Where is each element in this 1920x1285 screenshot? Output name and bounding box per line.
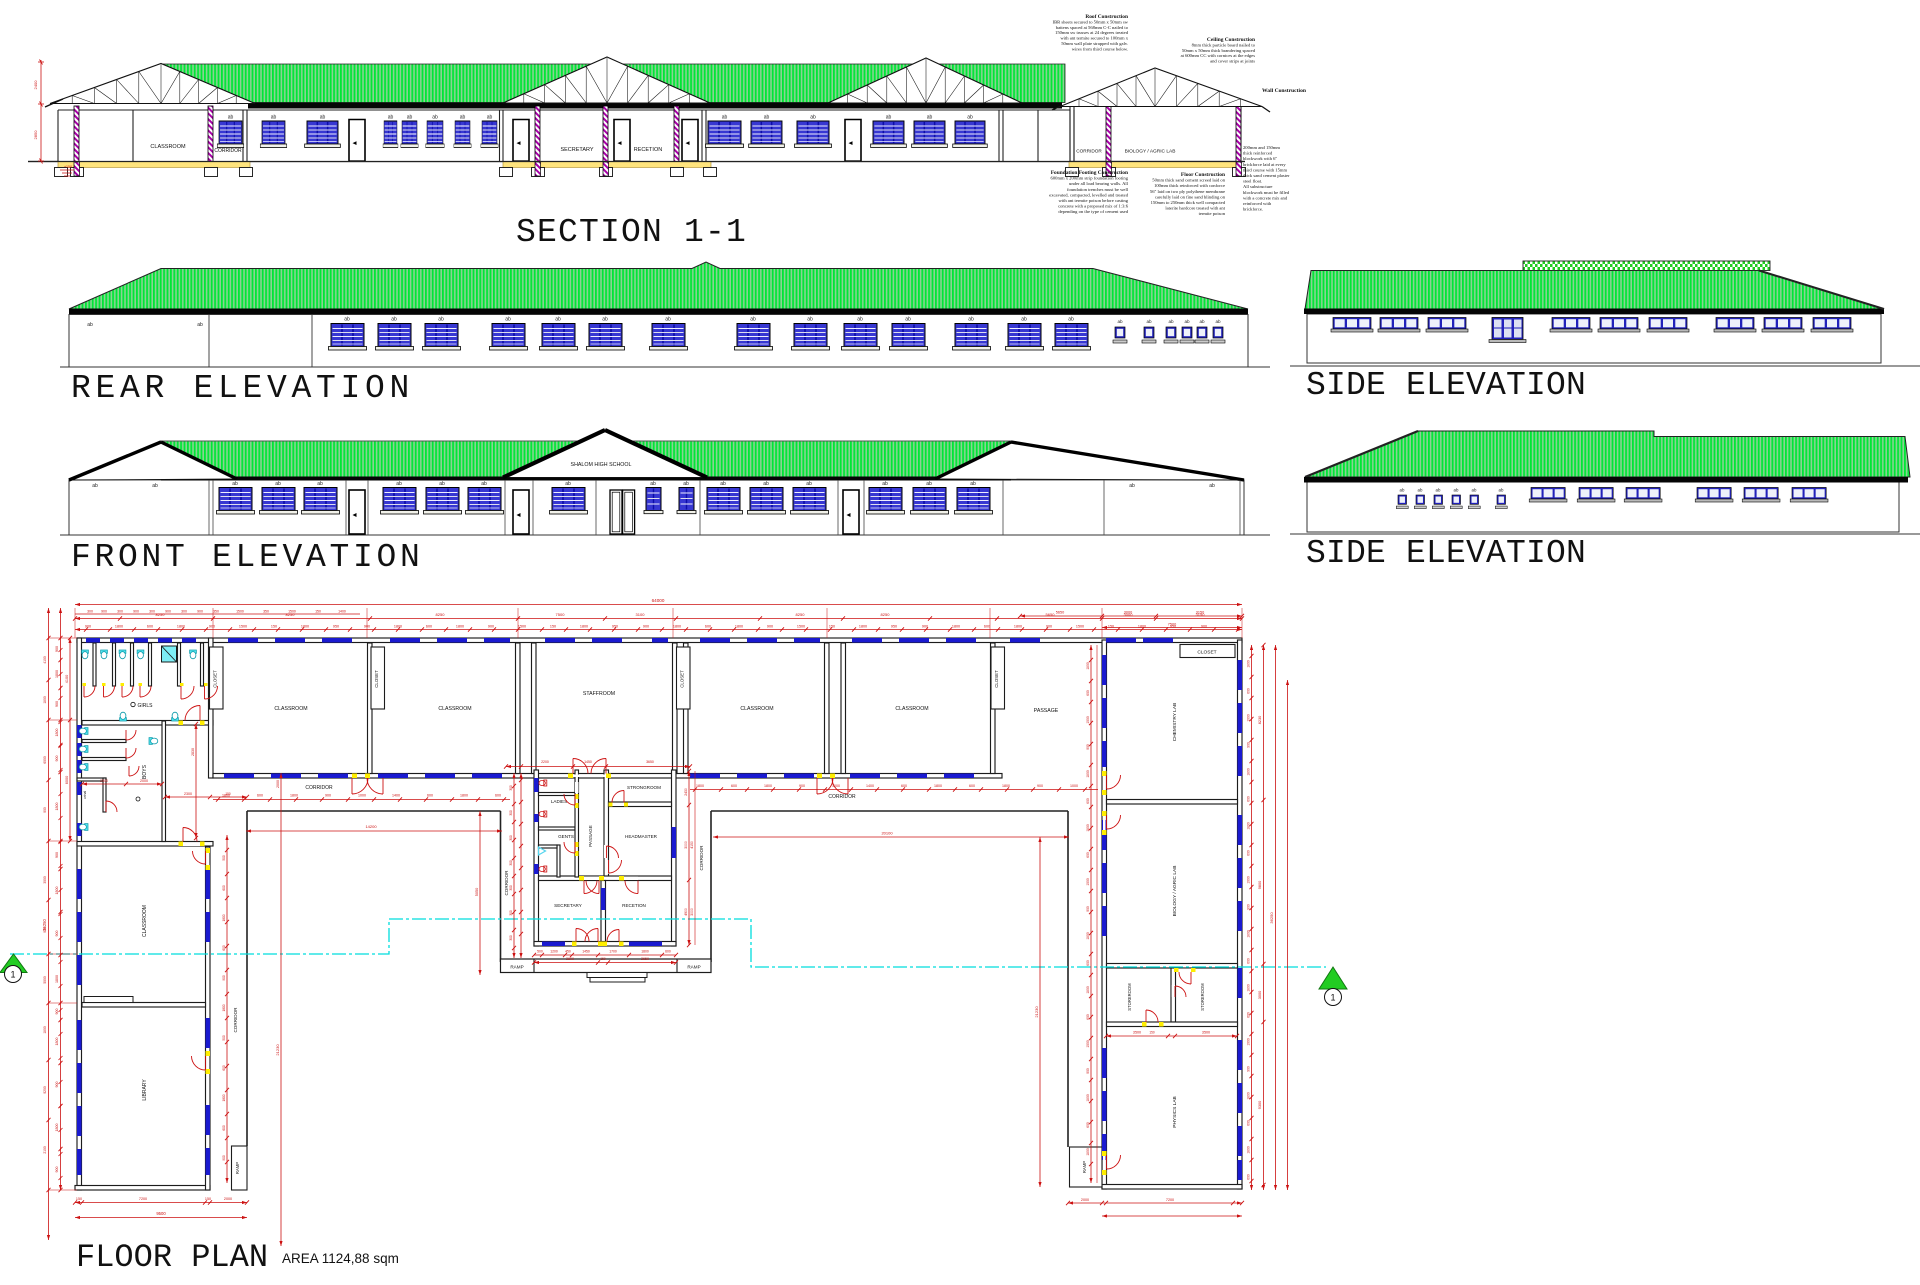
svg-text:2500: 2500 (100, 779, 108, 783)
svg-text:1000: 1000 (832, 784, 840, 788)
svg-text:ab: ab (882, 481, 888, 487)
svg-text:ab: ab (271, 115, 277, 121)
svg-text:5050: 5050 (475, 888, 479, 896)
svg-text:600: 600 (1247, 1120, 1251, 1126)
svg-text:1800: 1800 (580, 625, 588, 629)
svg-text:GENTS: GENTS (558, 834, 574, 839)
svg-text:600: 600 (1247, 1012, 1251, 1018)
svg-text:8250: 8250 (436, 612, 446, 617)
svg-text:300: 300 (509, 860, 513, 866)
svg-text:ab: ab (927, 115, 933, 121)
svg-text:1800: 1800 (1086, 824, 1090, 832)
svg-text:300: 300 (117, 610, 123, 614)
svg-text:laterite hardcore treated with: laterite hardcore treated with ant (1165, 206, 1225, 211)
svg-text:ab: ab (1168, 319, 1174, 324)
svg-text:900: 900 (1247, 742, 1251, 748)
svg-text:1800: 1800 (1086, 1094, 1090, 1102)
svg-text:600: 600 (1247, 1174, 1251, 1180)
svg-text:ab: ab (232, 481, 238, 487)
svg-text:with ant termite poison before: with ant termite poison before casting (1058, 198, 1128, 203)
svg-text:150: 150 (271, 625, 277, 629)
svg-text:ab: ab (1146, 319, 1152, 324)
svg-text:1800: 1800 (1086, 662, 1090, 670)
svg-text:SHALOM HIGH SCHOOL: SHALOM HIGH SCHOOL (571, 462, 632, 468)
svg-text:AREA 1124,88 sqm: AREA 1124,88 sqm (282, 1251, 399, 1266)
svg-text:ab: ab (555, 317, 561, 323)
svg-text:900: 900 (1247, 1066, 1251, 1072)
svg-text:ab: ab (857, 317, 863, 323)
svg-text:3000: 3000 (684, 841, 688, 849)
svg-text:50mm thick sand cement screed: 50mm thick sand cement screed laid on (1152, 178, 1225, 183)
svg-text:300: 300 (509, 835, 513, 841)
svg-text:900: 900 (43, 927, 47, 933)
svg-text:PASSAGE: PASSAGE (1034, 708, 1059, 714)
svg-text:600: 600 (1086, 1014, 1090, 1020)
svg-text:CORRIDOR: CORRIDOR (699, 845, 704, 871)
svg-text:STRONGROOM: STRONGROOM (627, 785, 661, 790)
svg-text:RECETION: RECETION (634, 147, 662, 153)
svg-text:6000: 6000 (43, 756, 47, 764)
svg-text:ab: ab (1209, 483, 1215, 489)
svg-text:blockwork with 6": blockwork with 6" (1243, 156, 1277, 161)
svg-text:ab: ab (926, 481, 932, 487)
svg-text:CORRIDOR: CORRIDOR (233, 1007, 238, 1033)
svg-text:ab: ab (432, 115, 438, 121)
svg-text:3000: 3000 (1124, 611, 1132, 615)
svg-text:150: 150 (76, 1197, 82, 1201)
svg-text:under all load bearing walls.: under all load bearing walls. All (1069, 181, 1129, 186)
svg-text:21230: 21230 (275, 1044, 280, 1056)
svg-text:CORRIDOR: CORRIDOR (214, 148, 242, 154)
svg-text:1800: 1800 (301, 625, 309, 629)
svg-text:BIOLOGY / AGRIC LAB: BIOLOGY / AGRIC LAB (1172, 866, 1178, 917)
svg-text:ab: ab (92, 483, 98, 489)
svg-text:1800: 1800 (1247, 660, 1251, 668)
svg-text:900: 900 (488, 625, 494, 629)
svg-text:150: 150 (829, 625, 835, 629)
svg-text:1000: 1000 (358, 794, 366, 798)
svg-text:150: 150 (1108, 625, 1114, 629)
svg-text:CHEMISTRY LAB: CHEMISTRY LAB (1172, 703, 1178, 741)
svg-text:3000: 3000 (690, 908, 694, 916)
svg-text:7200: 7200 (1166, 1198, 1174, 1202)
svg-text:ab: ab (807, 317, 813, 323)
svg-text:300: 300 (509, 885, 513, 891)
svg-text:600: 600 (427, 794, 433, 798)
svg-text:ab: ab (228, 115, 234, 121)
svg-text:50mm wall plate strapped with: 50mm wall plate strapped with galv. (1061, 41, 1128, 46)
svg-text:2850: 2850 (33, 130, 38, 140)
svg-text:600: 600 (969, 784, 975, 788)
svg-text:RECETION: RECETION (622, 903, 646, 908)
svg-text:600: 600 (705, 625, 711, 629)
svg-text:ab: ab (1454, 488, 1459, 493)
svg-text:ab: ab (87, 322, 93, 328)
svg-text:1400: 1400 (866, 784, 874, 788)
svg-text:2000: 2000 (140, 779, 148, 783)
svg-text:1800: 1800 (696, 784, 704, 788)
svg-text:ab: ab (1436, 488, 1441, 493)
svg-text:900: 900 (1201, 625, 1207, 629)
svg-text:ab: ab (1418, 488, 1423, 493)
svg-text:1000: 1000 (1070, 784, 1078, 788)
svg-text:ab: ab (565, 481, 571, 487)
svg-text:ab: ab (810, 115, 816, 121)
svg-text:1400: 1400 (392, 794, 400, 798)
svg-text:1500: 1500 (236, 610, 244, 614)
svg-text:1700: 1700 (609, 950, 617, 954)
svg-text:900: 900 (767, 625, 773, 629)
svg-text:7200: 7200 (139, 1197, 147, 1201)
svg-text:1500: 1500 (518, 625, 526, 629)
svg-text:900: 900 (209, 625, 215, 629)
svg-text:3000: 3000 (43, 876, 47, 884)
svg-text:3150: 3150 (1196, 611, 1204, 615)
svg-text:CORRIDOR: CORRIDOR (305, 785, 333, 791)
svg-text:ab: ab (344, 317, 350, 323)
svg-text:300: 300 (509, 910, 513, 916)
svg-text:150mm sw trusses at 24 degrees: 150mm sw trusses at 24 degrees treated (1055, 30, 1129, 35)
svg-text:ab: ab (1184, 319, 1190, 324)
svg-text:8250: 8250 (156, 612, 166, 617)
svg-text:3650: 3650 (646, 760, 654, 764)
svg-text:3000: 3000 (1258, 991, 1262, 999)
svg-text:1800: 1800 (1014, 625, 1022, 629)
svg-text:CLOSET: CLOSET (994, 670, 999, 688)
svg-text:ab: ab (396, 481, 402, 487)
svg-text:SIDE ELEVATION: SIDE ELEVATION (1306, 367, 1586, 404)
svg-text:ab: ab (750, 317, 756, 323)
svg-text:1800: 1800 (1086, 770, 1090, 778)
svg-text:third course with 15mm: third course with 15mm (1243, 167, 1287, 172)
svg-text:300: 300 (509, 935, 513, 941)
svg-text:1800: 1800 (934, 784, 942, 788)
svg-text:4150: 4150 (690, 841, 694, 849)
svg-text:950: 950 (333, 625, 339, 629)
svg-text:FRONT ELEVATION: FRONT ELEVATION (71, 539, 424, 576)
svg-text:5650: 5650 (1056, 611, 1064, 615)
svg-text:50mm x 50mm thick brandering s: 50mm x 50mm thick brandering spaced (1182, 48, 1256, 53)
svg-text:RAMP: RAMP (235, 1162, 240, 1174)
svg-text:600: 600 (1086, 960, 1090, 966)
svg-text:STAFFROOM: STAFFROOM (583, 691, 615, 697)
svg-text:3500: 3500 (1133, 1031, 1141, 1035)
svg-text:600: 600 (426, 625, 432, 629)
svg-text:8230: 8230 (1258, 716, 1262, 724)
svg-text:600: 600 (1247, 688, 1251, 694)
svg-text:2400: 2400 (33, 80, 38, 90)
svg-text:600: 600 (901, 784, 907, 788)
svg-text:ab: ab (1021, 317, 1027, 323)
svg-text:1400: 1400 (338, 610, 346, 614)
svg-text:600: 600 (495, 794, 501, 798)
svg-text:SECRETARY: SECRETARY (560, 147, 593, 153)
svg-text:LADIES: LADIES (551, 799, 567, 804)
svg-text:900: 900 (197, 610, 203, 614)
svg-text:CLASSROOM: CLASSROOM (150, 144, 186, 150)
svg-text:150: 150 (315, 610, 321, 614)
svg-text:ab: ab (1472, 488, 1477, 493)
svg-text:ab: ab (388, 115, 394, 121)
svg-text:Wall Construction: Wall Construction (1262, 88, 1307, 94)
svg-text:150: 150 (205, 1197, 211, 1201)
svg-text:RAMP: RAMP (510, 965, 523, 970)
svg-text:steel float.: steel float. (1243, 179, 1262, 184)
svg-text:with a concrete mix and: with a concrete mix and (1243, 195, 1288, 200)
svg-text:900: 900 (222, 975, 226, 981)
svg-text:900: 900 (643, 625, 649, 629)
svg-text:900: 900 (165, 610, 171, 614)
svg-text:1800: 1800 (222, 914, 226, 921)
svg-text:ab: ab (968, 317, 974, 323)
svg-text:at 600mm CC with cornices at t: at 600mm CC with cornices at the edges (1181, 53, 1256, 58)
svg-text:STOREROOM: STOREROOM (1127, 983, 1132, 1011)
svg-text:ab: ab (665, 317, 671, 323)
svg-text:1800: 1800 (1247, 930, 1251, 938)
svg-text:1000: 1000 (1086, 1040, 1090, 1048)
svg-text:4900: 4900 (684, 908, 688, 916)
svg-text:PASSAGE: PASSAGE (588, 825, 593, 847)
svg-text:wires from third course below.: wires from third course below. (1072, 46, 1128, 51)
svg-text:9300: 9300 (1258, 1101, 1262, 1109)
svg-text:1800: 1800 (222, 1004, 226, 1011)
svg-text:1800: 1800 (735, 625, 743, 629)
svg-text:GIRLS: GIRLS (137, 703, 153, 709)
svg-text:+150: +150 (64, 165, 72, 169)
svg-text:950: 950 (612, 625, 618, 629)
svg-text:1000: 1000 (1247, 714, 1251, 722)
svg-text:ab: ab (1400, 488, 1405, 493)
svg-text:ab: ab (481, 481, 487, 487)
svg-text:600: 600 (1086, 1122, 1090, 1128)
svg-text:900: 900 (922, 625, 928, 629)
svg-text:900: 900 (55, 1167, 59, 1173)
svg-text:brickforce laid at every: brickforce laid at every (1243, 162, 1286, 167)
svg-text:ab: ab (460, 115, 466, 121)
svg-text:IBR sheets secured to 50mm x 5: IBR sheets secured to 50mm x 50mm sw (1053, 19, 1129, 24)
svg-text:1500: 1500 (797, 625, 805, 629)
svg-text:BOYS: BOYS (142, 764, 148, 779)
svg-text:with ant termite secured to 10: with ant termite secured to 100mm x (1060, 36, 1128, 41)
svg-text:1800: 1800 (1247, 984, 1251, 992)
svg-text:600: 600 (984, 625, 990, 629)
svg-text:1800: 1800 (55, 729, 59, 737)
svg-text:500: 500 (222, 1035, 226, 1041)
svg-text:900: 900 (55, 1009, 59, 1015)
svg-text:1800: 1800 (460, 794, 468, 798)
svg-text:ab: ab (970, 481, 976, 487)
svg-text:urinal: urinal (83, 791, 87, 800)
svg-text:ab: ab (320, 115, 326, 121)
svg-text:1800: 1800 (115, 625, 123, 629)
svg-text:1800: 1800 (55, 1124, 59, 1132)
svg-text:900: 900 (1086, 906, 1090, 912)
svg-text:ab: ab (683, 481, 689, 487)
svg-text:350: 350 (263, 610, 269, 614)
svg-text:1800: 1800 (1247, 822, 1251, 830)
svg-text:1800: 1800 (290, 794, 298, 798)
svg-text:56" laid on two ply polythene: 56" laid on two ply polythene membrane (1150, 189, 1225, 194)
svg-text:1800: 1800 (1138, 625, 1146, 629)
svg-text:ab: ab (438, 317, 444, 323)
svg-text:brickforce.: brickforce. (1243, 207, 1263, 212)
svg-text:ab: ab (905, 317, 911, 323)
svg-text:1800: 1800 (859, 625, 867, 629)
svg-text:ab: ab (886, 115, 892, 121)
svg-text:STOREROOM: STOREROOM (1200, 983, 1205, 1011)
svg-text:900: 900 (43, 807, 47, 813)
svg-text:900: 900 (55, 852, 59, 858)
svg-text:depending on the type of cemen: depending on the type of cement used (1058, 209, 1128, 214)
svg-text:2100: 2100 (43, 1146, 47, 1154)
svg-text:7500: 7500 (556, 612, 566, 617)
svg-text:1800: 1800 (1002, 784, 1010, 788)
svg-text:1800: 1800 (952, 625, 960, 629)
svg-text:300: 300 (149, 610, 155, 614)
svg-text:1800: 1800 (1247, 768, 1251, 776)
svg-text:300: 300 (87, 610, 93, 614)
svg-text:900: 900 (55, 931, 59, 937)
svg-text:200mm and 150mm: 200mm and 150mm (1243, 145, 1280, 150)
svg-text:1800: 1800 (764, 784, 772, 788)
svg-text:36250: 36250 (1269, 912, 1274, 924)
svg-text:1000: 1000 (1247, 876, 1251, 884)
svg-text:ab: ab (407, 115, 413, 121)
svg-text:8250: 8250 (881, 612, 891, 617)
svg-text:blockwork must be filled: blockwork must be filled (1243, 190, 1290, 195)
svg-text:1000: 1000 (1086, 716, 1090, 724)
svg-text:ab: ab (967, 115, 973, 121)
svg-text:2300: 2300 (184, 792, 192, 796)
svg-text:600: 600 (731, 784, 737, 788)
svg-text:CLASSROOM: CLASSROOM (740, 706, 773, 712)
svg-text:600: 600 (1247, 958, 1251, 964)
svg-text:150: 150 (225, 792, 231, 796)
svg-text:900: 900 (799, 784, 805, 788)
svg-text:900: 900 (1086, 744, 1090, 750)
svg-text:CLASSROOM: CLASSROOM (895, 706, 928, 712)
svg-text:600: 600 (222, 1125, 226, 1131)
svg-text:1800: 1800 (177, 625, 185, 629)
svg-text:REAR ELEVATION: REAR ELEVATION (71, 370, 414, 407)
svg-text:SIDE ELEVATION: SIDE ELEVATION (1306, 535, 1586, 572)
svg-text:ab: ab (275, 481, 281, 487)
svg-text:600: 600 (1247, 796, 1251, 802)
svg-text:64000: 64000 (652, 598, 665, 603)
svg-text:All substructure: All substructure (1243, 184, 1272, 189)
svg-text:2430: 2430 (684, 788, 688, 796)
svg-text:300: 300 (181, 610, 187, 614)
svg-text:2830: 2830 (191, 748, 195, 756)
svg-text:900: 900 (101, 610, 107, 614)
svg-text:ab: ab (317, 481, 323, 487)
svg-text:3500: 3500 (1202, 1031, 1210, 1035)
svg-text:900: 900 (222, 1155, 226, 1161)
svg-text:1800: 1800 (1086, 986, 1090, 994)
svg-text:1800: 1800 (55, 975, 59, 983)
svg-text:3100: 3100 (636, 612, 646, 617)
svg-text:600: 600 (1086, 798, 1090, 804)
svg-text:1800: 1800 (673, 625, 681, 629)
svg-text:7500: 7500 (1168, 623, 1176, 627)
svg-text:900: 900 (55, 1082, 59, 1088)
svg-text:600: 600 (257, 794, 263, 798)
svg-text:150: 150 (1149, 1031, 1155, 1035)
svg-text:ab: ab (152, 483, 158, 489)
svg-text:900: 900 (1086, 1068, 1090, 1074)
svg-text:900: 900 (55, 701, 59, 707)
svg-text:900: 900 (1037, 784, 1043, 788)
svg-text:1500: 1500 (1076, 625, 1084, 629)
svg-text:9500: 9500 (156, 1211, 166, 1216)
svg-text:900: 900 (1046, 625, 1052, 629)
svg-text:600: 600 (665, 950, 671, 954)
svg-text:1800: 1800 (456, 625, 464, 629)
svg-text:ab: ab (1215, 319, 1221, 324)
svg-text:9200: 9200 (43, 1086, 47, 1094)
svg-text:450: 450 (565, 950, 571, 954)
svg-text:21230: 21230 (1034, 1006, 1039, 1018)
svg-text:PHYSICS LAB: PHYSICS LAB (1172, 1096, 1178, 1127)
svg-text:600: 600 (1247, 850, 1251, 856)
svg-text:1450: 1450 (584, 760, 592, 764)
svg-text:CLOSET: CLOSET (213, 670, 218, 688)
svg-text:20100: 20100 (881, 831, 893, 836)
svg-text:1000: 1000 (1086, 878, 1090, 886)
svg-text:3650: 3650 (641, 957, 649, 961)
svg-text:600: 600 (222, 885, 226, 891)
svg-text:CORRIDOR: CORRIDOR (1076, 149, 1102, 154)
svg-text:LIBRARY: LIBRARY (142, 1079, 148, 1101)
svg-text:ab: ab (720, 481, 726, 487)
svg-text:ab: ab (1068, 317, 1074, 323)
svg-text:ab: ab (650, 481, 656, 487)
svg-text:CLASSROOM: CLASSROOM (142, 905, 148, 937)
svg-text:RAMP: RAMP (1082, 1161, 1087, 1173)
svg-text:600mm x 200mm strip foundation: 600mm x 200mm strip foundation footing (1051, 176, 1129, 181)
svg-text:14200: 14200 (365, 824, 377, 829)
svg-text:100mm thick reinforced with co: 100mm thick reinforced with conforce (1154, 183, 1225, 188)
svg-text:8250: 8250 (796, 612, 806, 617)
svg-text:3800: 3800 (566, 957, 574, 961)
svg-text:CLOSET: CLOSET (374, 670, 379, 688)
svg-text:ab: ab (391, 317, 397, 323)
svg-text:ab: ab (1129, 483, 1135, 489)
svg-text:150: 150 (550, 625, 556, 629)
svg-text:1: 1 (10, 970, 15, 980)
svg-text:900: 900 (55, 646, 59, 652)
svg-text:ab: ab (722, 115, 728, 121)
svg-text:900: 900 (133, 610, 139, 614)
svg-text:6000: 6000 (65, 776, 69, 784)
svg-text:1800: 1800 (394, 625, 402, 629)
svg-text:1800: 1800 (1086, 1148, 1090, 1156)
svg-text:CORRIDOR: CORRIDOR (828, 794, 856, 800)
svg-text:ab: ab (806, 481, 812, 487)
svg-text:SECRETARY: SECRETARY (554, 903, 582, 908)
svg-text:950: 950 (891, 625, 897, 629)
svg-text:1800: 1800 (55, 803, 59, 811)
svg-text:1000: 1000 (1247, 1038, 1251, 1046)
svg-text:ab: ab (439, 481, 445, 487)
svg-text:900: 900 (1247, 904, 1251, 910)
svg-text:1800: 1800 (55, 670, 59, 678)
svg-text:300: 300 (509, 810, 513, 816)
svg-text:2000: 2000 (224, 1197, 232, 1201)
svg-text:ab: ab (1199, 319, 1205, 324)
svg-text:600: 600 (222, 1065, 226, 1071)
svg-text:concrete with a proposed mix o: concrete with a proposed mix of 1:3:6 (1058, 204, 1129, 209)
